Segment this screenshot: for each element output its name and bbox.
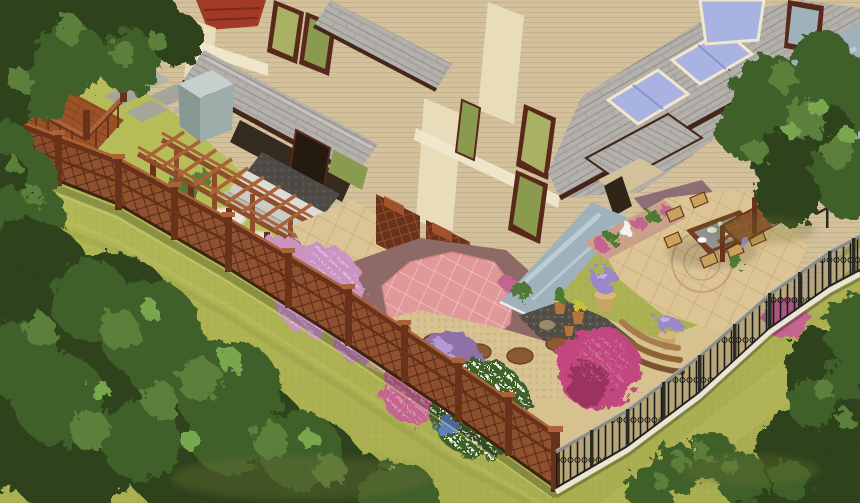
fence-post — [225, 216, 232, 272]
round-stone — [539, 320, 555, 330]
post-cap — [398, 320, 411, 325]
lavender-highlight — [596, 270, 606, 280]
tree-shadow — [170, 456, 430, 500]
tree-shadow — [680, 454, 820, 486]
foliage-highlight — [252, 422, 288, 458]
roof-skylight — [700, 0, 764, 44]
foliage-highlight — [142, 382, 178, 418]
planter-flower — [645, 209, 659, 223]
garden-rendering — [0, 0, 860, 503]
stepping-stone — [507, 348, 533, 364]
railing-post — [828, 251, 832, 289]
foliage-highlight — [178, 358, 222, 402]
planter-flower — [593, 237, 607, 251]
planter-flower — [632, 216, 646, 230]
foliage-sunlit — [218, 348, 242, 372]
foliage-blob — [792, 30, 852, 90]
railing-post — [590, 430, 594, 468]
foliage-highlight — [24, 186, 44, 206]
magenta-dots — [578, 334, 630, 386]
post-cap — [112, 154, 125, 159]
post-cap — [548, 426, 563, 432]
fence-post — [505, 396, 512, 456]
railing-post — [798, 272, 802, 310]
planter-flower — [619, 223, 633, 237]
foliage-sunlit — [814, 380, 834, 400]
clay-pot — [554, 302, 566, 314]
railing-post — [826, 208, 829, 228]
fence-post — [115, 158, 122, 210]
fence-post — [285, 252, 292, 308]
foliage-highlight — [3, 155, 21, 173]
pergola-post — [250, 194, 255, 234]
railing-post — [768, 293, 772, 331]
foliage-highlight — [744, 138, 768, 162]
foliage-highlight — [768, 62, 796, 90]
foliage-highlight — [8, 68, 32, 92]
screenshot-stage — [0, 0, 860, 503]
post-cap — [52, 130, 65, 135]
foliage-highlight — [148, 32, 168, 52]
foliage-highlight — [24, 314, 56, 346]
deck-post — [83, 110, 90, 140]
foliage-sunlit — [837, 125, 855, 143]
post-cap — [452, 358, 465, 363]
foliage-highlight — [110, 40, 134, 64]
foliage-sunlit — [300, 430, 320, 450]
trellis-greenery — [729, 255, 743, 269]
foliage-highlight — [70, 410, 110, 450]
foliage-sunlit — [140, 300, 160, 320]
railing-post — [733, 324, 737, 362]
post-cap — [342, 284, 355, 289]
post-cap — [168, 182, 181, 187]
foliage-highlight — [652, 474, 668, 490]
pink-accent-bush — [500, 275, 516, 291]
post-cap — [282, 248, 295, 253]
foliage-sunlit — [836, 410, 856, 430]
railing-post — [698, 355, 702, 393]
railing-post — [852, 238, 856, 274]
lavender-bloom — [592, 267, 618, 293]
fence-post — [401, 324, 408, 382]
clay-pot — [572, 312, 584, 324]
post-cap — [502, 392, 515, 397]
foliage-sunlit — [90, 380, 110, 400]
post-cap — [222, 212, 235, 217]
pot-plant-yellow — [572, 300, 584, 312]
tree-shadow — [705, 216, 815, 244]
railing-post — [626, 409, 630, 447]
foliage-sunlit — [784, 124, 800, 140]
fence-post — [455, 362, 462, 422]
foliage-sunlit — [808, 98, 828, 118]
plate — [698, 237, 707, 243]
planter-flower — [606, 230, 620, 244]
pot-plant — [553, 289, 567, 303]
foliage-highlight — [56, 16, 84, 44]
foliage-sunlit — [180, 430, 200, 450]
railing-post — [662, 382, 666, 420]
fence-post — [345, 288, 352, 346]
foliage-highlight — [100, 310, 140, 350]
fence-post — [171, 186, 178, 240]
